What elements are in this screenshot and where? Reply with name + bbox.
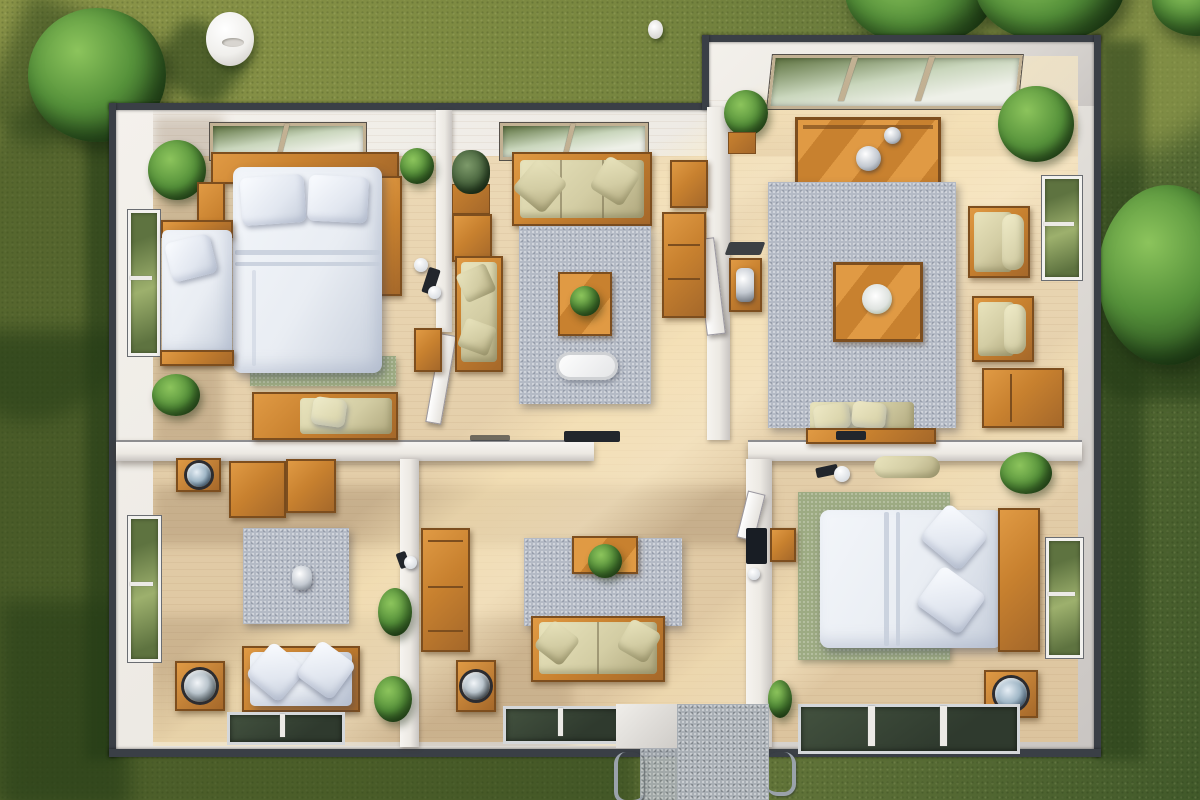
room2-cabinet-line-a xyxy=(668,244,700,246)
room1-nightstand xyxy=(414,328,442,372)
trim-top-wing xyxy=(702,35,1101,42)
room4-cabinet-b xyxy=(286,459,336,513)
room2-cabinet-tall xyxy=(662,212,706,318)
room6-duvet-fold-b xyxy=(896,512,900,646)
room5-floor-mat-mullion xyxy=(558,708,563,736)
white-bird xyxy=(648,20,663,39)
counter-item xyxy=(470,435,510,441)
room3-glass-carafe xyxy=(736,268,754,302)
window-left-upper xyxy=(128,210,160,356)
room3-corner-planter xyxy=(728,132,756,154)
walkway-rail-right xyxy=(766,752,796,796)
room6-dresser xyxy=(770,528,796,562)
room3-silver-bottle xyxy=(884,127,901,144)
wall-bedroom-living xyxy=(436,110,452,332)
room4-wall-lamp-ball xyxy=(404,556,417,569)
room1-duvet-fold-b xyxy=(235,262,380,266)
window-left-lower-sash xyxy=(130,582,153,586)
room5-wardrobe-line-c xyxy=(428,630,463,632)
room3-daybed-tray xyxy=(806,428,936,444)
window-right-lower xyxy=(1046,538,1083,658)
room5-sofa-seam xyxy=(597,622,599,674)
room1-daybed-foot xyxy=(160,350,234,366)
room2-sideboard xyxy=(452,214,492,262)
skylight-wing xyxy=(767,55,1023,109)
room3-armchair-lower-back xyxy=(1004,304,1026,354)
room1-bench-pillow xyxy=(310,396,348,428)
room3-cabinet xyxy=(982,368,1064,428)
trim-wing-left xyxy=(702,35,709,110)
trim-top-main xyxy=(109,103,709,110)
room5-table-plant xyxy=(588,544,622,578)
room3-console-rail xyxy=(803,125,933,129)
window-right-lower-sash xyxy=(1048,592,1075,596)
window-left-lower xyxy=(128,516,161,662)
room2-cabinet-small xyxy=(670,160,708,208)
room4-floor-mat xyxy=(227,712,345,745)
room2-planter-plant xyxy=(452,150,490,194)
room4-ornament xyxy=(292,566,312,590)
room6-wall-lamp-lower xyxy=(748,568,760,580)
room2-cabinet-line-b xyxy=(668,278,700,280)
room6-glass-floor xyxy=(798,704,1020,754)
room1-duvet-fold-a xyxy=(235,250,380,255)
room4-shrub-b xyxy=(374,676,412,722)
trim-bottom-left-seg xyxy=(109,749,677,757)
room4-shrub-a xyxy=(378,588,412,636)
room6-wall-tv xyxy=(746,528,767,564)
room1-pillow-left xyxy=(239,174,306,226)
room1-pillow-right xyxy=(307,174,369,223)
room6-shrub-small xyxy=(768,680,792,718)
room6-wall-lamp-ball xyxy=(834,466,850,482)
room1-shelf-shrub xyxy=(400,148,434,184)
counter-vent xyxy=(564,431,620,442)
room1-floor-shrub xyxy=(152,374,200,416)
room1-duvet-fold-c xyxy=(252,270,256,366)
room3-tray-remote xyxy=(836,431,866,440)
room6-bolster xyxy=(874,456,940,478)
room3-corner-shrub xyxy=(724,90,768,136)
sphere-planter-lip xyxy=(222,38,244,47)
entry-landing xyxy=(616,704,677,748)
room3-round-shrub xyxy=(998,86,1074,162)
room6-glass-mullion-b xyxy=(940,706,947,746)
room6-duvet-fold-a xyxy=(884,512,889,646)
room3-flower-centerpiece xyxy=(862,284,892,314)
house-east-shadow xyxy=(1098,40,1144,760)
room4-wall-clock-box xyxy=(176,458,221,492)
entry-walkway-side xyxy=(640,748,677,800)
room4-speaker-dial xyxy=(184,670,216,702)
floorplan-render xyxy=(0,0,1200,800)
room6-divider-shrub xyxy=(1000,452,1052,494)
room4-cabinet-a xyxy=(229,461,286,518)
room5-speaker-dial xyxy=(462,672,490,700)
room3-armchair-upper-back xyxy=(1002,214,1024,270)
trim-left xyxy=(109,103,116,757)
room5-speaker-cube xyxy=(456,660,496,712)
room4-wall-clock-face xyxy=(187,463,211,487)
room2-table-plant xyxy=(570,286,600,316)
room3-daybed-pillow-b xyxy=(851,400,888,429)
walkway-rail-left xyxy=(614,752,644,800)
room5-wardrobe-line-a xyxy=(428,540,463,542)
trim-right xyxy=(1094,35,1101,757)
room3-silver-decanter xyxy=(856,146,881,171)
room3-wall-tray xyxy=(725,242,766,255)
room4-speaker-cube xyxy=(175,661,225,711)
entry-walkway xyxy=(677,704,769,800)
window-right-upper-sash xyxy=(1044,222,1074,226)
room6-glass-mullion-a xyxy=(868,706,875,746)
room1-wall-lamp-ball-b xyxy=(428,286,441,299)
room3-cabinet-seam xyxy=(1010,374,1012,422)
room5-floor-mat xyxy=(503,706,623,744)
window-left-upper-sash xyxy=(130,276,152,280)
window-right-upper xyxy=(1042,176,1082,280)
room5-wardrobe-door xyxy=(421,528,470,652)
room4-floor-mat-mullion xyxy=(280,714,285,737)
room2-serving-tray xyxy=(556,352,618,380)
room6-headboard xyxy=(998,508,1040,652)
room5-wardrobe-line-b xyxy=(428,586,463,588)
room1-wall-lamp-ball-a xyxy=(414,258,428,272)
